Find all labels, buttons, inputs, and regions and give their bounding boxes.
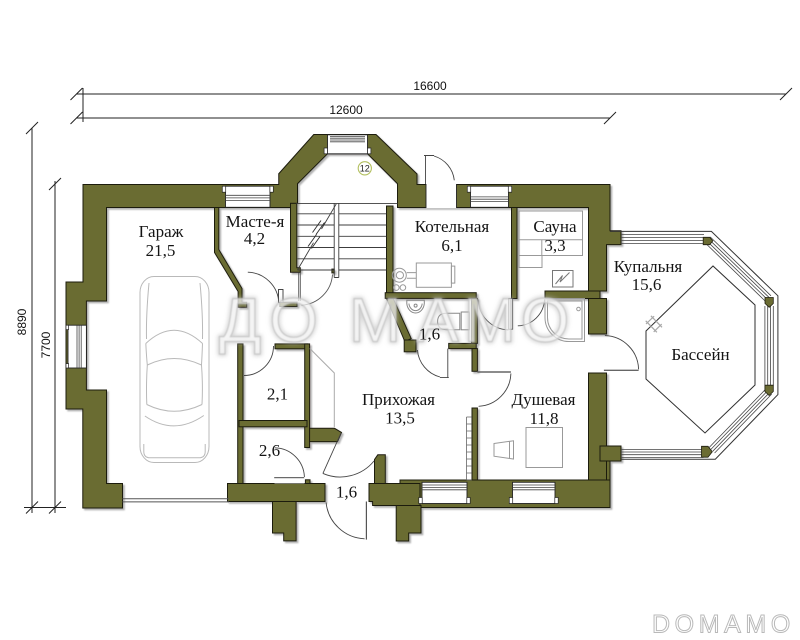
svg-text:15,6: 15,6 — [632, 275, 662, 294]
svg-text:Купальня: Купальня — [614, 257, 683, 276]
svg-text:3,3: 3,3 — [544, 236, 565, 255]
svg-text:1,6: 1,6 — [419, 325, 440, 344]
svg-text:4,2: 4,2 — [244, 229, 265, 248]
svg-text:11,8: 11,8 — [529, 409, 558, 428]
svg-text:12600: 12600 — [329, 103, 363, 117]
svg-text:Бассейн: Бассейн — [671, 345, 729, 364]
svg-text:13,5: 13,5 — [385, 409, 415, 428]
svg-text:Сауна: Сауна — [533, 217, 577, 236]
svg-text:16600: 16600 — [413, 79, 447, 93]
svg-text:6,1: 6,1 — [441, 236, 462, 255]
svg-text:1,6: 1,6 — [336, 483, 357, 502]
svg-text:Гараж: Гараж — [139, 222, 184, 241]
svg-text:Прихожая: Прихожая — [362, 390, 435, 409]
svg-text:21,5: 21,5 — [146, 241, 176, 260]
svg-text:7700: 7700 — [39, 331, 53, 358]
svg-text:2,6: 2,6 — [259, 441, 280, 460]
svg-text:2,1: 2,1 — [267, 385, 288, 404]
svg-text:Душевая: Душевая — [512, 390, 576, 409]
svg-text:8890: 8890 — [15, 308, 29, 335]
svg-text:DOMAMO: DOMAMO — [652, 611, 795, 639]
svg-text:12: 12 — [360, 164, 370, 174]
svg-text:Котельная: Котельная — [415, 217, 490, 236]
